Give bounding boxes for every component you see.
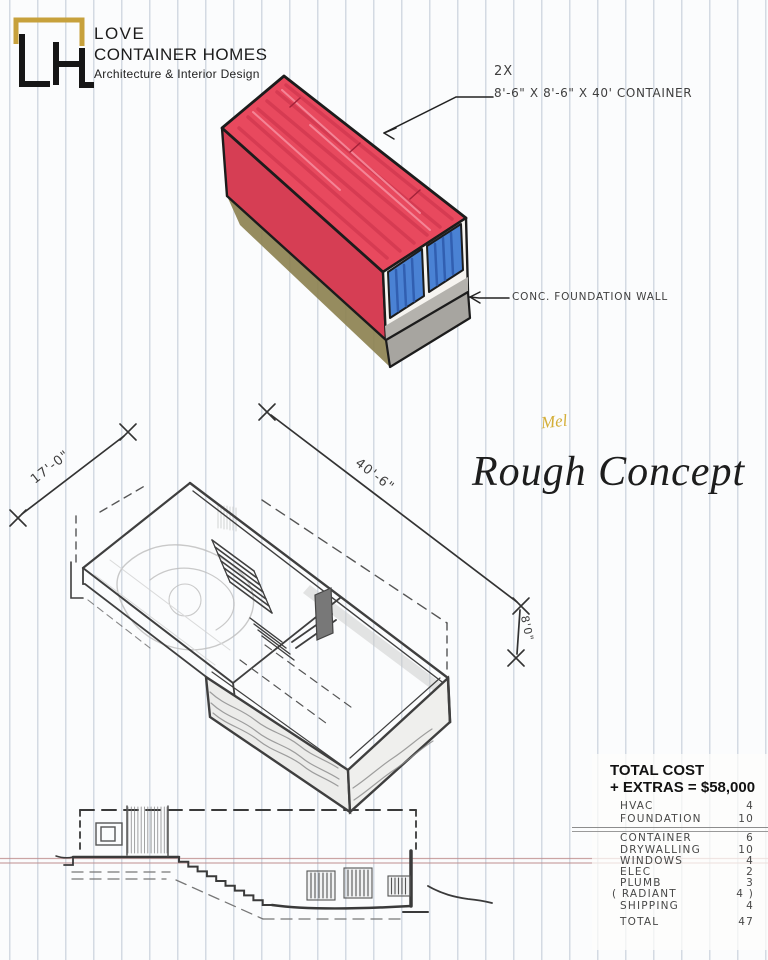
container-sketch [222, 76, 470, 367]
cost-row-foundation: FOUNDATION 10 [612, 813, 740, 824]
container-box-walls [206, 677, 450, 812]
cost-table-heading: TOTAL COST + EXTRAS = $58,000 [610, 762, 755, 796]
cost-row-container: CONTAINER 6 [612, 832, 740, 843]
sheet-title: Rough Concept [472, 448, 745, 496]
note-container-qty: 2X [494, 64, 513, 79]
section-wall-hatch [128, 807, 167, 853]
cost-row-plumb: PLUMB 3 [612, 877, 740, 888]
logo-lh-monogram [12, 12, 102, 92]
dimension-lines [10, 404, 529, 666]
logo-tagline: Architecture & Interior Design [94, 67, 260, 81]
cost-item: FOUNDATION [620, 813, 702, 825]
dimension-x-ticks [10, 404, 529, 666]
note-foundation-wall: CONC. FOUNDATION WALL [512, 291, 668, 303]
doorway-dark [315, 588, 333, 640]
note-container-dims: 8'-6" X 8'-6" X 40' CONTAINER [494, 86, 692, 100]
cost-heading-line2: + EXTRAS = $58,000 [610, 779, 755, 796]
section-window-hatch [307, 868, 410, 900]
deck-pencil-curves [95, 505, 254, 665]
cost-value: 4 [714, 800, 754, 812]
cost-row-windows: WINDOWS 4 [612, 855, 740, 866]
cost-value: 6 [714, 832, 754, 844]
cost-row-total: TOTAL 47 [612, 916, 740, 927]
cost-row-drywalling: DRYWALLING 10 [612, 844, 740, 855]
cost-item: ( RADIANT [612, 888, 677, 900]
cost-row-hvac: HVAC 4 [612, 800, 740, 811]
floor-plan-sketch [71, 483, 450, 812]
cost-value: 4 ) [714, 888, 754, 900]
cost-row-radiant: ( RADIANT 4 ) [612, 888, 740, 899]
cost-value: 10 [714, 813, 754, 825]
cost-heading-line1: TOTAL COST [610, 762, 755, 779]
cost-row-elec: ELEC 2 [612, 866, 740, 877]
section-detail-box [96, 823, 122, 845]
logo-line1: LOVE [94, 24, 145, 44]
cost-value: 4 [714, 900, 754, 912]
cost-value: 47 [714, 916, 754, 928]
signature-mel: Mel [540, 411, 568, 434]
logo-line2: CONTAINER HOMES [94, 45, 267, 65]
cost-item: CONTAINER [620, 832, 692, 844]
cost-item: SHIPPING [620, 900, 679, 912]
logo [12, 12, 102, 97]
stairs-upper [212, 540, 272, 613]
scanned-sketch-page: LOVE CONTAINER HOMES Architecture & Inte… [0, 0, 768, 960]
cost-row-shipping: SHIPPING 4 [612, 900, 740, 911]
cost-item: TOTAL [620, 916, 659, 928]
cost-item: HVAC [620, 800, 654, 812]
